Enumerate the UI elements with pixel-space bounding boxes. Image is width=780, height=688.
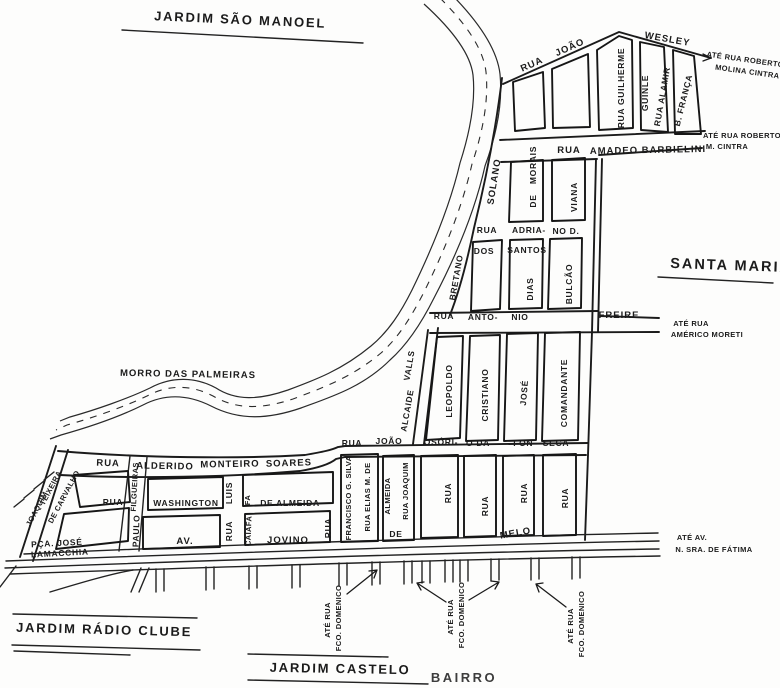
street-label-alcaide: ALCAIDE	[398, 389, 415, 433]
street-label-rua: RUA	[323, 518, 333, 539]
street-label-rua-guilherme: RUA GUILHERME	[616, 48, 626, 129]
street-label-luis: LUIS	[224, 482, 234, 504]
street-label-b-franca: B. FRANÇA	[672, 73, 695, 127]
street-label-anto: ANTO-	[468, 312, 498, 322]
street-label-joao: JOÃO	[554, 36, 587, 59]
underline-santa-maria	[658, 277, 773, 283]
map-labels: JARDIM SÃO MANOEL SANTA MARIA MORRO DAS …	[16, 8, 780, 685]
street-label-melo: MELO	[499, 525, 532, 541]
street-label-joao-2: JOÃO	[376, 436, 403, 446]
street-map-canvas: JARDIM SÃO MANOEL SANTA MARIA MORRO DAS …	[0, 0, 780, 688]
city-block	[597, 36, 633, 130]
arrow-domenico-2a	[417, 582, 446, 602]
street-right-boundary	[585, 159, 596, 540]
city-block	[552, 54, 590, 128]
street-label-rua: RUA	[434, 311, 455, 321]
avenue-line-4	[10, 556, 660, 574]
street-label-fon: FON-	[513, 438, 537, 448]
area-label-jardim-radio-clube: JARDIM RÁDIO CLUBE	[16, 620, 192, 640]
street-label-seca: SECA	[543, 438, 569, 448]
note-m-cintra: M. CINTRA	[706, 142, 749, 151]
overline-jardim-radio-clube	[13, 614, 197, 618]
street-label-dos: DOS	[474, 246, 495, 256]
note-fco-domenico-2b: FCO. DOMENICO	[457, 582, 466, 648]
avenue-left-curve	[50, 570, 133, 592]
note-ate-rua-domenico-2a: ATÉ RUA	[446, 599, 455, 635]
street-label-rua-elias-m-de: RUA ELIAS M. DE	[363, 462, 372, 531]
note-ate-av: ATÉ AV.	[677, 533, 707, 542]
area-label-santa-maria: SANTA MARIA	[670, 256, 780, 276]
street-label-jose: JOSÉ	[518, 380, 530, 406]
square-label-lamacchia: LAMACCHIA	[31, 546, 89, 559]
area-label-jardim-castelo: JARDIM CASTELO	[270, 660, 411, 677]
note-americo-moreti: AMÉRICO MORETI	[671, 330, 743, 339]
note-ate-rua-domenico-1a: ATÉ RUA	[323, 602, 332, 638]
street-label-rua-alamir: RUA ALAMIR	[652, 66, 672, 127]
underline-jardim-radio-clube	[12, 645, 200, 655]
city-blocks	[56, 36, 701, 549]
street-label-monteiro: MONTEIRO	[200, 458, 259, 470]
area-label-bairro: BAIRRO	[431, 670, 497, 685]
street-label-almeida: ALMEIDA	[383, 477, 392, 514]
street-label-no-d: NO D.	[552, 226, 579, 236]
street-label-de-almeida: DE ALMEIDA	[260, 498, 320, 508]
street-label-morais: MORAIS	[528, 146, 538, 184]
underline-jardim-sao-manoel	[122, 30, 363, 43]
street-label-jovino: JOVINO	[267, 535, 309, 546]
street-label-santos: SANTOS	[507, 245, 546, 255]
street-label-guinle: GUINLE	[640, 75, 650, 111]
street-label-francisco-g-silva: FRANCISCO G. SILVA	[344, 455, 353, 540]
street-label-bulcao: BULCÃO	[564, 264, 574, 305]
street-label-de-2: DE	[389, 529, 402, 539]
street-label-caiafa: CAIAFA	[243, 515, 253, 546]
street-label-soares: SOARES	[266, 457, 312, 470]
street-label-nio: NIO	[511, 312, 528, 322]
street-right-boundary-2	[598, 159, 602, 332]
street-label-rua: RUA	[519, 483, 529, 504]
street-label-o-da: O DA	[466, 438, 490, 448]
street-label-rua: RUA	[477, 225, 498, 235]
note-ate-rua-americo-1: ATÉ RUA	[673, 319, 709, 328]
street-label-rua: RUA	[560, 488, 570, 509]
street-label-amadeo-barbielini: AMADEO BARBIELINI	[590, 144, 706, 157]
note-fco-domenico-3b: FCO. DOMENICO	[577, 591, 586, 657]
street-label-rua: RUA	[480, 496, 490, 517]
area-label-jardim-sao-manoel: JARDIM SÃO MANOEL	[154, 8, 327, 30]
underline-jardim-castelo	[248, 680, 428, 684]
street-label-rua: RUA	[342, 438, 363, 448]
street-label-cristiano: CRISTIANO	[480, 368, 490, 421]
arrow-domenico-2b	[469, 581, 499, 600]
street-label-rua: RUA	[224, 521, 234, 542]
note-ate-rua-roberto-2: ATÉ RUA ROBERTO	[703, 131, 780, 140]
note-ate-rua-domenico-3a: ATÉ RUA	[566, 608, 575, 644]
street-label-comandante: COMANDANTE	[559, 359, 569, 427]
street-label-freire: FREIRE	[599, 310, 640, 321]
note-fco-domenico-1b: FCO. DOMENICO	[334, 585, 343, 651]
city-block	[513, 72, 545, 131]
street-label-leopoldo: LEOPOLDO	[444, 364, 454, 417]
street-label-dias: DIAS	[525, 277, 535, 300]
street-label-rua: RUA	[557, 145, 581, 156]
street-label-filgueiras: FILGUEIRAS	[129, 462, 141, 512]
street-label-osori: OSÓRI-	[424, 436, 458, 447]
street-label-adria: ADRIA-	[512, 225, 546, 235]
street-label-rua: RUA	[96, 458, 120, 470]
street-label-av: AV.	[176, 536, 193, 547]
street-label-de: DE	[528, 194, 538, 207]
street-label-alderido: ALDERIDO	[136, 460, 194, 472]
area-label-morro-das-palmeiras: MORRO DAS PALMEIRAS	[120, 368, 256, 381]
street-label-valls: VALLS	[401, 349, 416, 381]
street-label-fa: FA	[243, 495, 252, 506]
street-label-rua-joaquim: RUA JOAQUIM	[401, 462, 410, 519]
overline-jardim-castelo	[248, 654, 388, 657]
arrow-domenico-3	[536, 583, 566, 607]
street-label-rua: RUA	[443, 483, 453, 504]
note-n-sra-de-fatima: N. SRA. DE FÁTIMA	[675, 545, 752, 554]
avenue-left-diagonal	[0, 566, 16, 587]
map-page: JARDIM SÃO MANOEL SANTA MARIA MORRO DAS …	[0, 0, 780, 688]
street-label-rua: RUA	[103, 497, 124, 507]
river-line-middle-dashed	[56, 0, 487, 430]
street-label-washington: WASHINGTON	[153, 498, 218, 508]
street-label-paulo: PAULO	[130, 514, 141, 547]
street-label-viana: VIANA	[569, 182, 579, 212]
